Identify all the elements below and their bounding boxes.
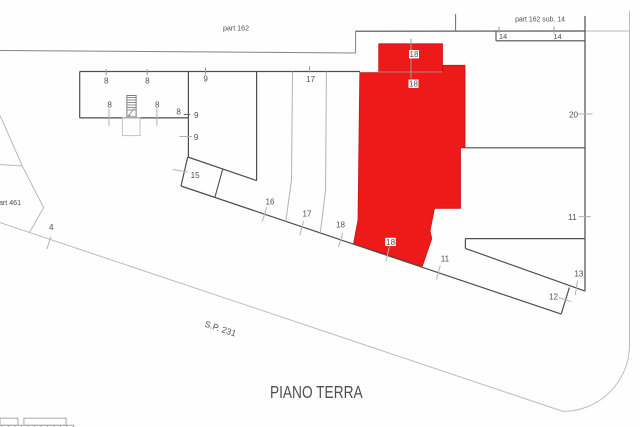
svg-text:14: 14 (553, 32, 561, 41)
svg-text:8: 8 (155, 101, 160, 110)
svg-text:18: 18 (410, 50, 419, 59)
svg-text:17: 17 (306, 75, 316, 84)
svg-text:12: 12 (549, 292, 559, 301)
svg-text:part 162: part 162 (223, 25, 249, 33)
svg-text:S.P. 231: S.P. 231 (203, 319, 237, 339)
svg-text:PIANO TERRA: PIANO TERRA (270, 384, 363, 403)
svg-text:11: 11 (441, 255, 450, 264)
svg-text:16: 16 (265, 197, 275, 206)
svg-text:18: 18 (386, 238, 395, 247)
svg-text:14: 14 (499, 32, 507, 41)
svg-text:11: 11 (568, 213, 577, 222)
svg-text:9: 9 (194, 133, 199, 142)
svg-text:8: 8 (145, 77, 150, 86)
svg-text:15: 15 (191, 171, 201, 180)
svg-text:8: 8 (107, 101, 112, 110)
svg-text:part 461: part 461 (0, 199, 21, 207)
svg-text:8: 8 (104, 77, 109, 86)
svg-text:part 162 sub. 14: part 162 sub. 14 (515, 16, 565, 23)
svg-text:18: 18 (336, 220, 346, 229)
svg-text:4: 4 (49, 223, 54, 232)
svg-text:17: 17 (302, 209, 312, 218)
svg-text:9: 9 (203, 75, 208, 84)
svg-text:18: 18 (409, 80, 418, 89)
svg-text:9: 9 (194, 111, 199, 120)
svg-text:8: 8 (176, 108, 181, 117)
svg-text:20: 20 (569, 111, 579, 120)
svg-text:13: 13 (574, 269, 584, 278)
